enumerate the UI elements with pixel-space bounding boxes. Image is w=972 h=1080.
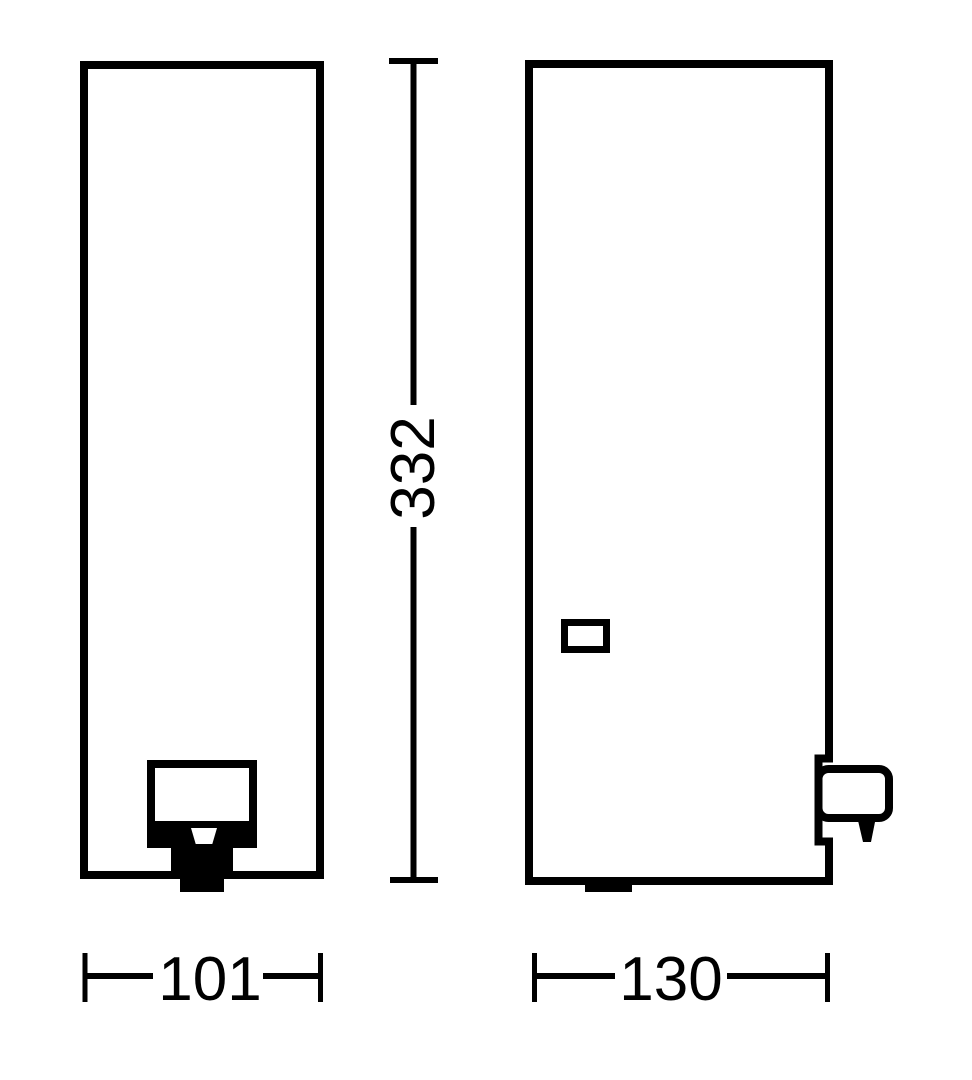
front-view — [84, 65, 320, 892]
height-dim-label: 332 — [379, 416, 448, 519]
front-width-dimension: 101 — [85, 945, 321, 1014]
front-width-label: 101 — [158, 945, 261, 1014]
side-window — [565, 623, 607, 650]
front-view-outline — [84, 65, 320, 875]
front-nozzle-spout — [171, 844, 233, 892]
side-width-dimension: 130 — [535, 945, 828, 1014]
side-view-outline — [529, 64, 829, 881]
drawing-canvas: 332 101 130 — [0, 0, 972, 1080]
pump-body — [819, 769, 890, 818]
side-view — [529, 64, 889, 892]
height-dimension: 332 — [379, 61, 448, 880]
side-bottom-tab — [585, 877, 632, 892]
technical-drawing: 332 101 130 — [0, 0, 972, 1080]
side-width-label: 130 — [619, 945, 722, 1014]
